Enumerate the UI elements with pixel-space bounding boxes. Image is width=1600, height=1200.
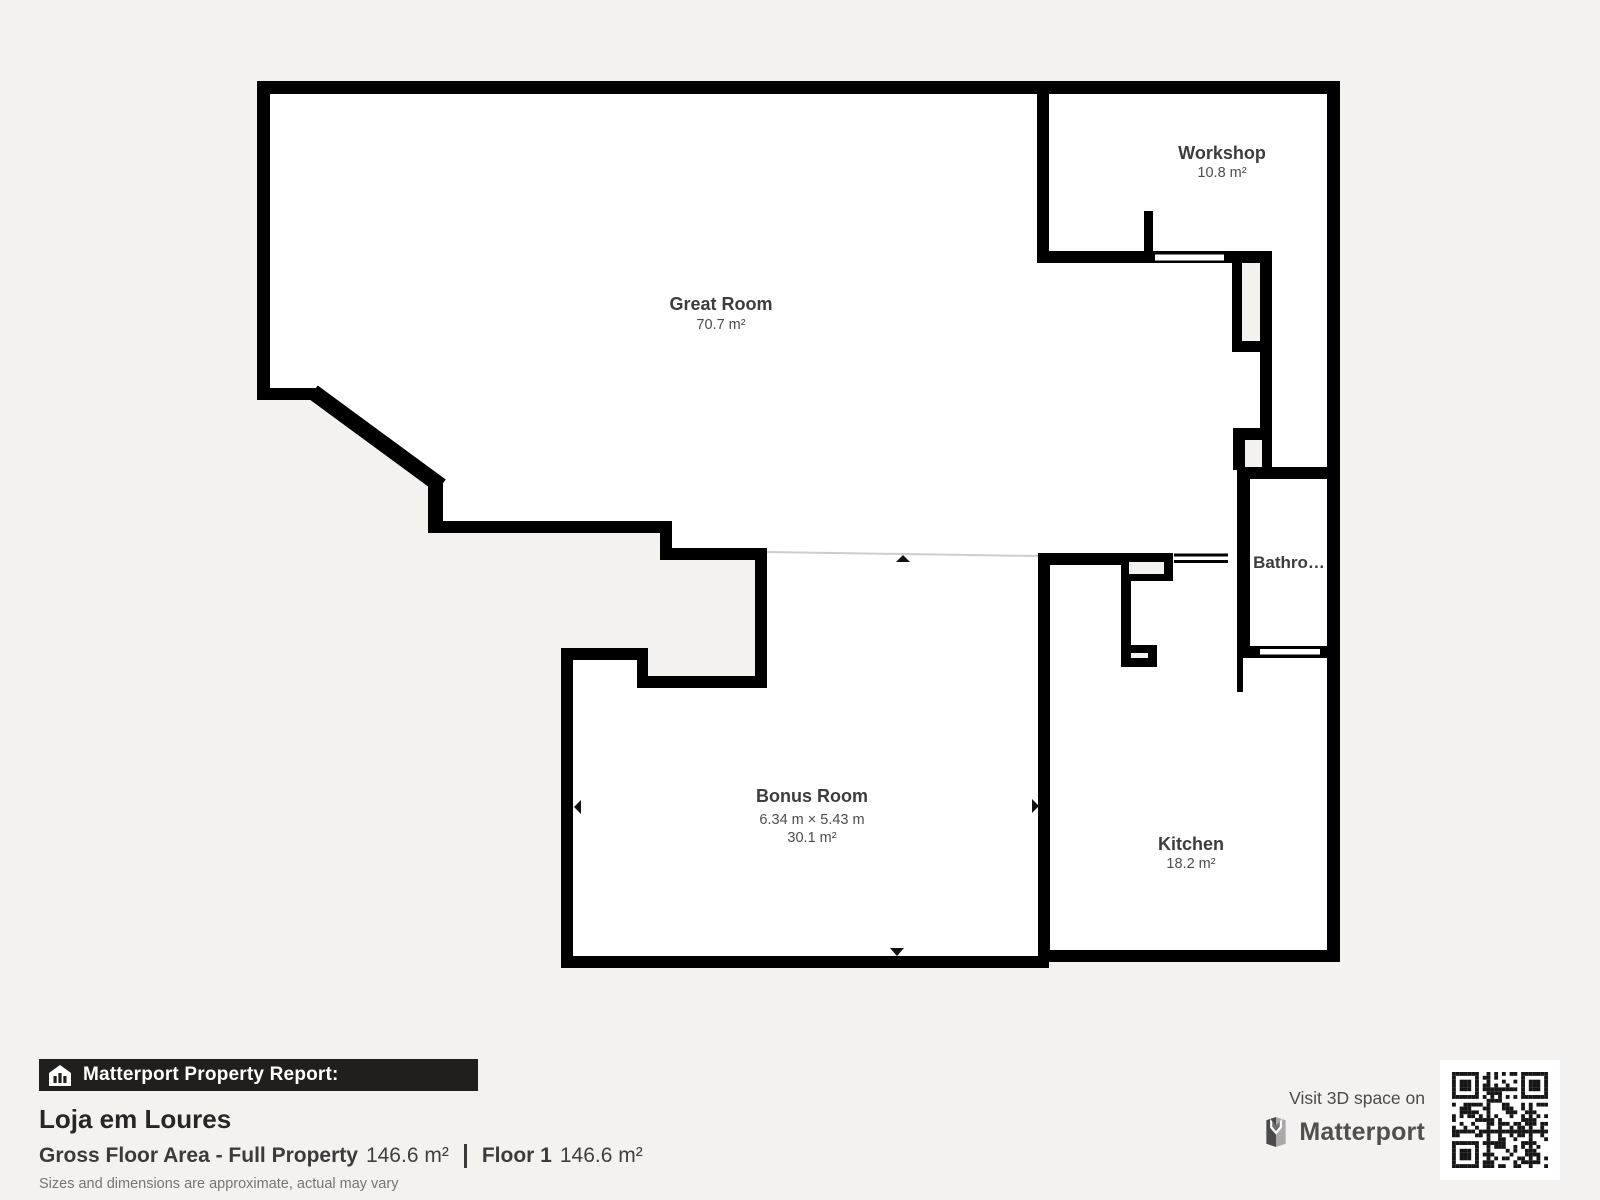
wall-kitchen-left — [1038, 553, 1050, 962]
report-badge-bar: Matterport Property Report: — [39, 1059, 478, 1091]
floor-top-band — [262, 86, 1335, 262]
shaft-lower — [1245, 440, 1262, 470]
wall-kitchen-bottom — [1038, 950, 1340, 962]
floor-label: Floor 1 — [482, 1144, 552, 1168]
matterport-logo-icon — [1261, 1117, 1291, 1147]
kitchen-area: 18.2 m² — [1166, 856, 1215, 872]
area-metrics: Gross Floor Area - Full Property 146.6 m… — [39, 1144, 659, 1168]
wall-kitchen-stub — [1237, 658, 1243, 692]
matterport-promo: Visit 3D space on Matterport — [1230, 1088, 1425, 1147]
kitchen-door-line-top — [1174, 554, 1228, 557]
wall-shaft1-bottom — [1232, 341, 1272, 352]
wall-bathroom-left — [1237, 467, 1250, 658]
qr-code — [1440, 1060, 1560, 1180]
wall-bonus-top-right — [637, 676, 767, 688]
wall-left — [257, 81, 270, 400]
wall-shaft1-left — [1232, 251, 1242, 350]
shaft-upper — [1242, 263, 1263, 342]
wall-step2-vert — [1233, 428, 1245, 470]
visit-3d-text: Visit 3D space on — [1230, 1088, 1425, 1109]
wall-bonus-topleft-horiz — [561, 648, 648, 660]
wall-workshop-stub — [1144, 211, 1153, 256]
wall-bonus-left — [561, 648, 573, 968]
wall-greatroom-bottom — [428, 521, 672, 533]
gross-area-value: 146.6 m² — [366, 1144, 449, 1168]
wall-top — [257, 81, 1340, 94]
matterport-brand-row: Matterport — [1230, 1117, 1425, 1147]
wall-shaft2-right — [1262, 436, 1272, 470]
matterport-wordmark: Matterport — [1299, 1118, 1425, 1147]
bathroom-door — [1260, 649, 1320, 655]
wall-workshop-left — [1037, 93, 1049, 263]
wall-right — [1327, 81, 1340, 962]
great-room-area: 70.7 m² — [696, 317, 745, 333]
disclaimer-text: Sizes and dimensions are approximate, ac… — [39, 1176, 659, 1192]
floor-value: 146.6 m² — [560, 1144, 643, 1168]
matterport-floorplan-report: { "plan": { "rooms": [ {"id": "great-roo… — [0, 0, 1600, 1200]
workshop-area: 10.8 m² — [1197, 165, 1246, 181]
pantry-notch — [1129, 562, 1164, 574]
bonus-room-label: Bonus Room — [756, 786, 868, 806]
report-legend: Matterport Property Report: Loja em Lour… — [39, 1059, 659, 1192]
report-badge-label: Matterport Property Report: — [83, 1064, 339, 1086]
kitchen-door-line-bottom — [1174, 560, 1228, 563]
kitchen-label: Kitchen — [1158, 834, 1224, 854]
wall-step-horiz — [660, 548, 767, 560]
wall-bathroom-top — [1244, 467, 1340, 479]
bonus-room-dims: 6.34 m × 5.43 m — [759, 812, 864, 828]
workshop-door — [1155, 255, 1224, 261]
bathroom-label: Bathro… — [1253, 553, 1325, 572]
pantry-slit — [1131, 653, 1148, 658]
metrics-divider — [464, 1144, 467, 1168]
wall-bonus-bottom — [561, 956, 1049, 968]
bonus-room-area: 30.1 m² — [787, 830, 836, 846]
gross-area-label: Gross Floor Area - Full Property — [39, 1144, 358, 1168]
floor-plan: Great Room 70.7 m² Workshop 10.8 m² Bath… — [0, 0, 1600, 1010]
great-room-label: Great Room — [669, 294, 772, 314]
house-icon — [49, 1065, 71, 1086]
property-name: Loja em Loures — [39, 1104, 659, 1135]
workshop-label: Workshop — [1178, 143, 1266, 163]
wall-notch-right — [755, 548, 767, 688]
